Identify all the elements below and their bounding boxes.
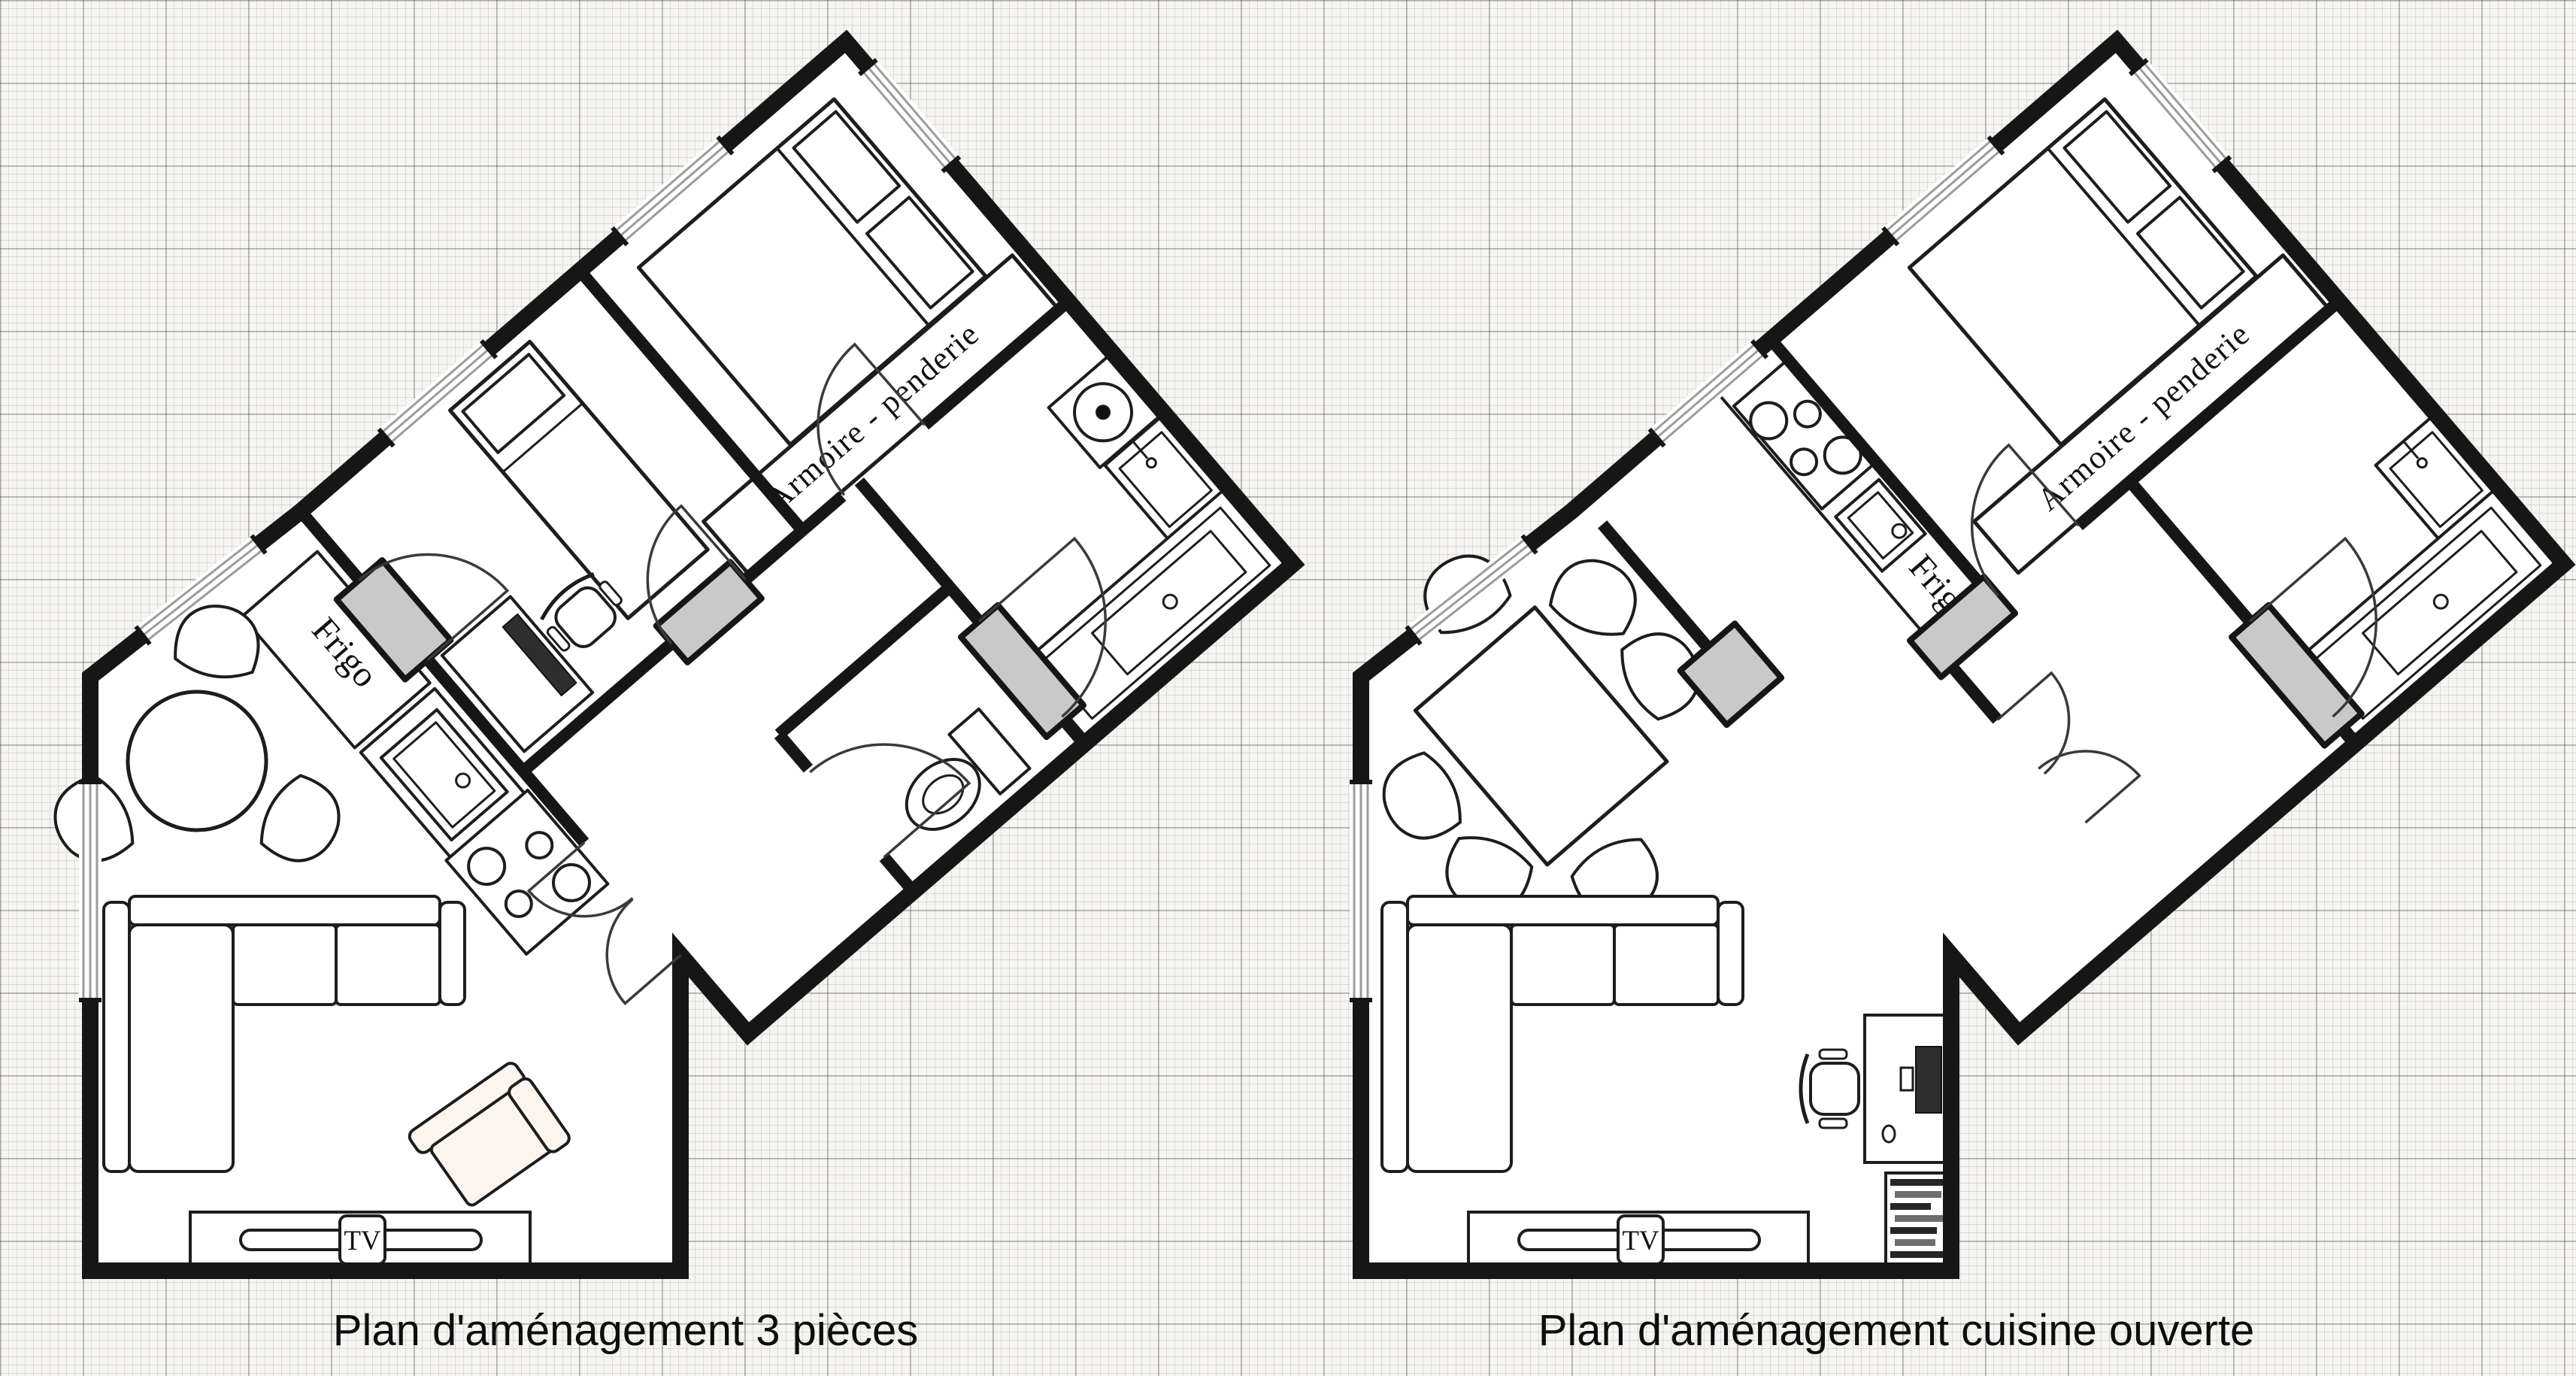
bookshelf bbox=[1886, 1173, 1949, 1268]
floor-plans-canvas: Armoire - penderieTVFrigoFrigoArmoire - … bbox=[0, 0, 2576, 1376]
caption-plan-cuisine-ouverte: Plan d'aménagement cuisine ouverte bbox=[1538, 1305, 2255, 1356]
caption-plan-3-pieces: Plan d'aménagement 3 pièces bbox=[333, 1305, 918, 1356]
floor-plans-drawing: Armoire - penderieTVFrigoFrigoArmoire - … bbox=[0, 0, 2576, 1376]
plan-cuisine-ouverte: FrigoArmoire - penderieTV bbox=[1350, 41, 2564, 1271]
tv-label-1: TV bbox=[1622, 1226, 1659, 1256]
tv-label-0: TV bbox=[344, 1226, 381, 1256]
plan-3-pieces: Armoire - penderieTVFrigo bbox=[41, 41, 1293, 1271]
